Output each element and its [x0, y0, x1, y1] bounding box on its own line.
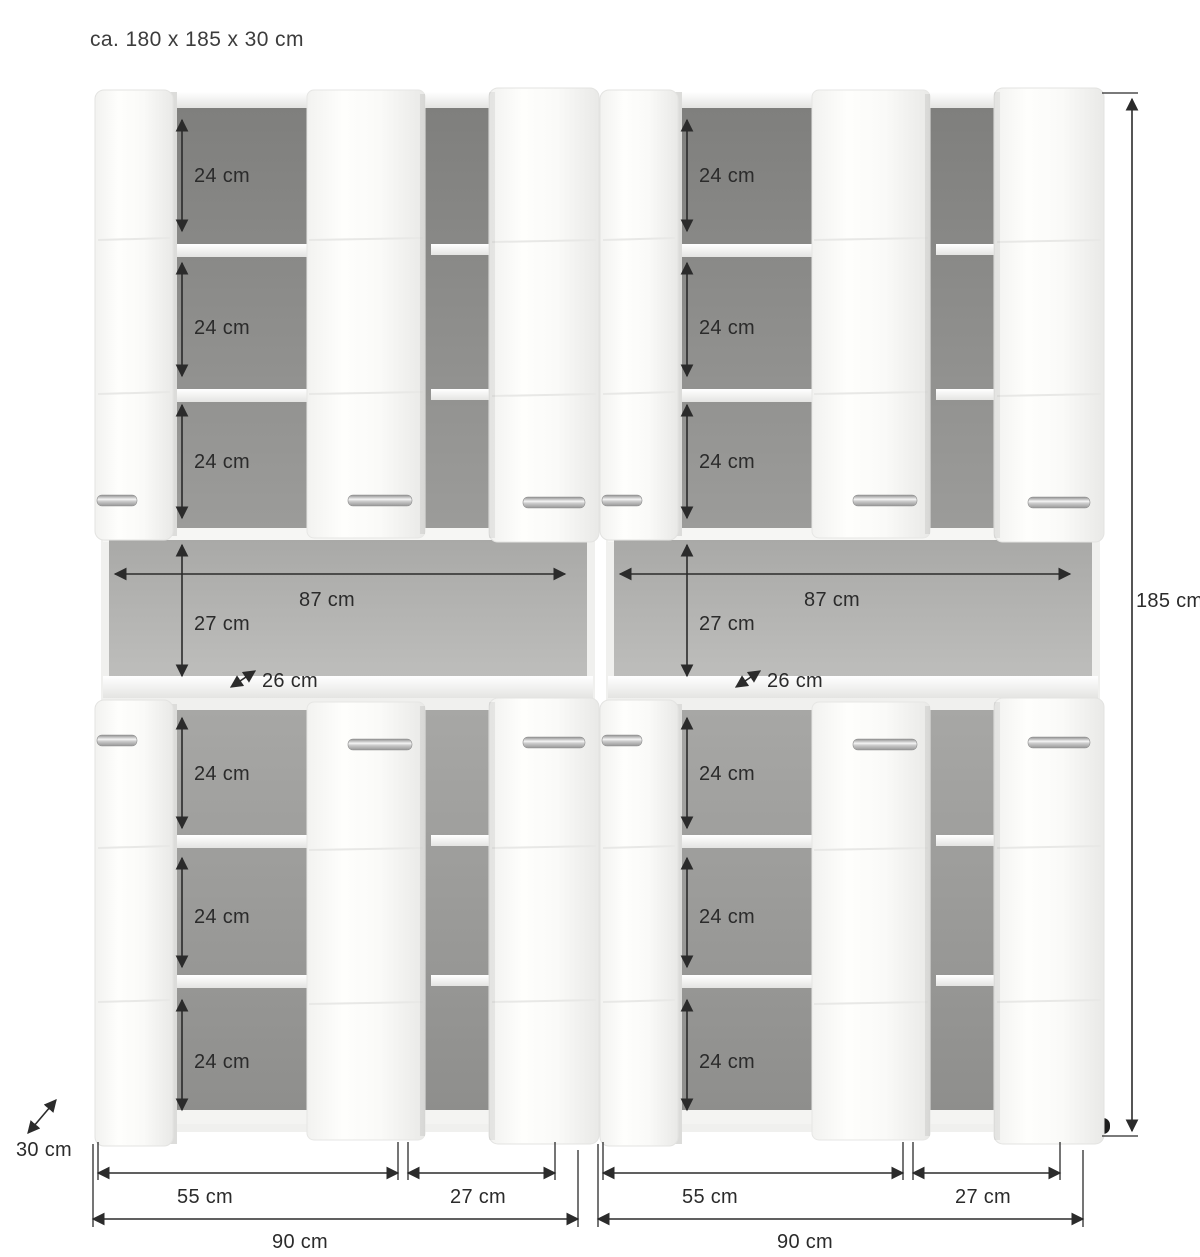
overall-height-annotation: 185 cm — [1102, 93, 1200, 1136]
shelf-height-label: 24 cm — [699, 451, 755, 473]
shelf-height-label: 24 cm — [194, 317, 250, 339]
shelf-height-label: 24 cm — [194, 906, 250, 928]
niche-width-label: 87 cm — [299, 589, 355, 611]
shelf-height-label: 24 cm — [194, 1051, 250, 1073]
niche-depth-label: 26 cm — [767, 670, 823, 692]
niche-height-label: 27 cm — [699, 613, 755, 635]
shelf-height-label: 24 cm — [699, 317, 755, 339]
unit-width-label: 90 cm — [272, 1231, 328, 1253]
door-section-width-label: 55 cm — [682, 1186, 738, 1208]
shelf-height-label: 24 cm — [194, 165, 250, 187]
side-section-width-label: 27 cm — [450, 1186, 506, 1208]
shelf-height-label: 24 cm — [194, 451, 250, 473]
overall-depth-annotation: 30 cm — [16, 1100, 72, 1161]
shelf-height-label: 24 cm — [699, 1051, 755, 1073]
furniture-dimension-diagram: ca. 180 x 185 x 30 cm 24 cm 24 cm 24 cm … — [0, 0, 1200, 1257]
niche-height-label: 27 cm — [194, 613, 250, 635]
side-section-width-label: 27 cm — [955, 1186, 1011, 1208]
cabinet-unit-right — [600, 88, 1110, 1146]
niche-depth-label: 26 cm — [262, 670, 318, 692]
page-title: ca. 180 x 185 x 30 cm — [90, 28, 304, 51]
unit-width-label: 90 cm — [777, 1231, 833, 1253]
shelf-height-label: 24 cm — [699, 906, 755, 928]
overall-depth-label: 30 cm — [16, 1139, 72, 1161]
cabinet-unit-left — [95, 88, 605, 1146]
niche-width-label: 87 cm — [804, 589, 860, 611]
shelf-height-label: 24 cm — [699, 165, 755, 187]
diagram-canvas: ca. 180 x 185 x 30 cm 24 cm 24 cm 24 cm … — [0, 0, 1200, 1257]
door-section-width-label: 55 cm — [177, 1186, 233, 1208]
shelf-height-label: 24 cm — [194, 763, 250, 785]
shelf-height-label: 24 cm — [699, 763, 755, 785]
overall-height-label: 185 cm — [1136, 590, 1200, 612]
overall-depth-arrow — [28, 1100, 56, 1133]
